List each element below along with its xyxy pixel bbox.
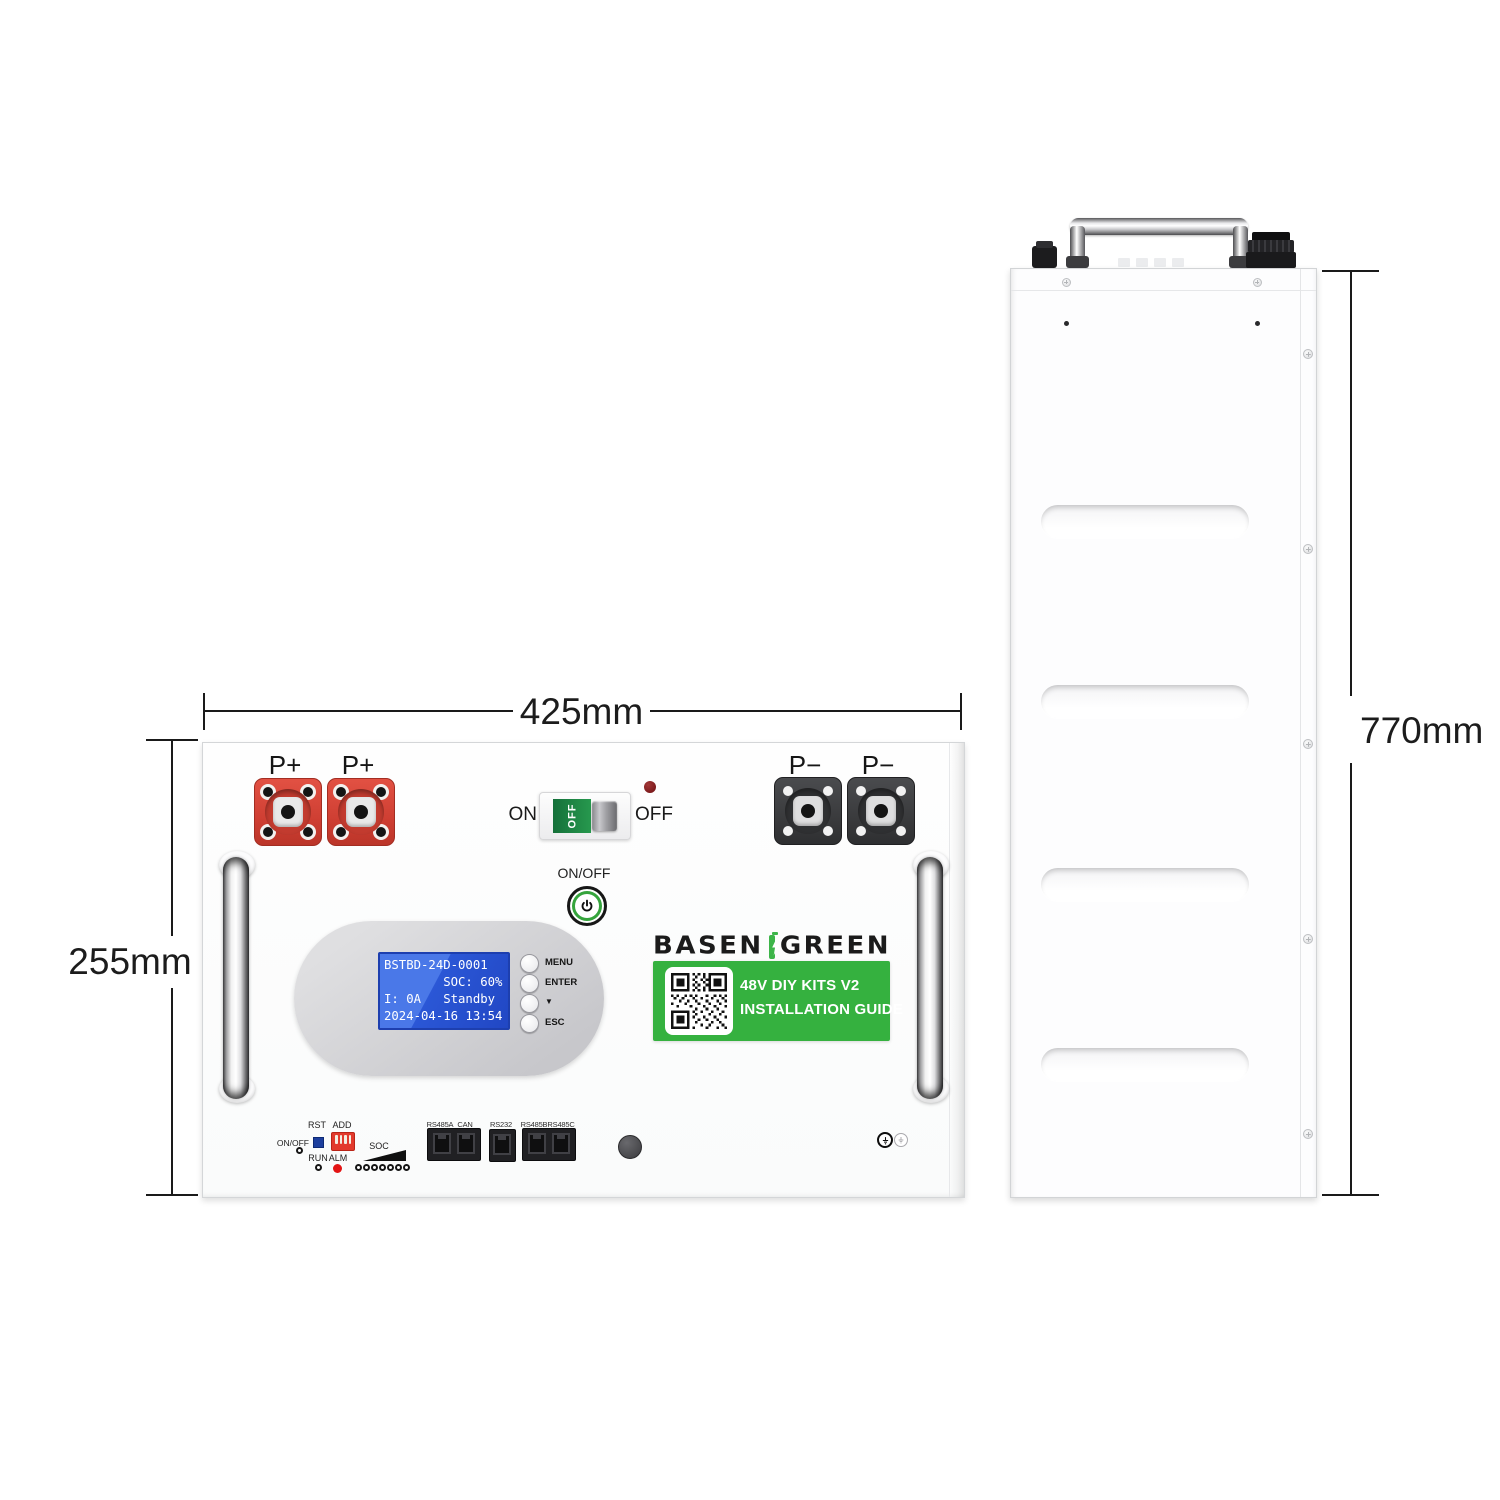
pin-hole xyxy=(1064,321,1069,326)
rj45-port xyxy=(433,1133,451,1154)
lcd-display: BSTBD-24D-0001 SOC: 60% I: 0A Standby 20… xyxy=(378,952,510,1030)
run-led xyxy=(315,1164,322,1171)
brand-word-left: BASEN xyxy=(653,932,764,960)
dimension-tick xyxy=(146,739,198,741)
soc-led xyxy=(355,1164,362,1171)
recessed-slot xyxy=(1041,685,1249,718)
positive-terminal xyxy=(327,778,395,846)
dimension-tick xyxy=(960,693,962,730)
rj45-port xyxy=(552,1133,570,1154)
positive-terminal-label: P+ xyxy=(255,750,315,781)
dimension-tick xyxy=(203,693,205,730)
rj45-port xyxy=(528,1133,546,1154)
soc-led xyxy=(395,1164,402,1171)
brand-word-right: GREEN xyxy=(780,932,891,960)
recessed-slot xyxy=(1041,868,1249,901)
lcd-line: I: 0A Standby xyxy=(384,991,504,1008)
recessed-slot xyxy=(1041,1048,1249,1081)
qr-code xyxy=(665,967,733,1035)
soc-wedge-icon xyxy=(363,1150,406,1161)
rs485b-rs485c-ports xyxy=(522,1128,576,1161)
lcd-line: 2024-04-16 13:54 xyxy=(384,1008,504,1025)
power-icon xyxy=(580,899,594,913)
breaker-off-label: OFF xyxy=(635,804,673,826)
power-button-label: ON/OFF xyxy=(549,865,619,881)
vent-slot xyxy=(1136,258,1148,267)
terminal-screw-hole xyxy=(303,827,313,837)
onoff-hole xyxy=(296,1147,303,1154)
rs232-port xyxy=(489,1129,516,1162)
positive-terminal-label: P+ xyxy=(328,750,388,781)
connector-base xyxy=(1246,252,1296,268)
dimension-line xyxy=(171,988,173,1196)
installation-guide-label: 48V DIY KITS V2 INSTALLATION GUIDE xyxy=(653,961,890,1041)
screw xyxy=(1253,278,1262,287)
esc-button xyxy=(520,1014,539,1033)
screw xyxy=(1062,278,1071,287)
guide-subtitle: INSTALLATION GUIDE xyxy=(740,1001,903,1018)
terminal-screw-hole xyxy=(896,826,906,836)
soc-led xyxy=(363,1164,370,1171)
terminal-pin xyxy=(354,805,368,819)
dimension-line xyxy=(1350,763,1352,1196)
status-led xyxy=(644,781,656,793)
breaker-window: OFF xyxy=(553,799,591,833)
rj11-port xyxy=(493,1134,511,1155)
negative-terminal xyxy=(774,777,842,845)
menu-button-label: MENU xyxy=(545,957,573,968)
soc-led xyxy=(403,1164,410,1171)
dimension-tick xyxy=(1322,1194,1379,1196)
battery-icon xyxy=(769,935,775,959)
height-dimension-label: 255mm xyxy=(66,941,194,983)
alarm-led xyxy=(333,1164,342,1173)
down-button xyxy=(520,994,539,1013)
reset-button xyxy=(313,1137,324,1148)
front-handle-right xyxy=(917,857,943,1099)
battery-dimension-diagram: 425mm 255mm 770mm P+ P+ P− P− xyxy=(0,0,1500,1500)
carry-handle xyxy=(1070,218,1248,235)
down-button-label: ▼ xyxy=(545,997,553,1006)
ground-screw-icon xyxy=(877,1132,893,1148)
vent-slot xyxy=(1118,258,1130,267)
rj45-port xyxy=(457,1133,475,1154)
breaker-on-label: ON xyxy=(503,804,537,826)
onoff-label: ON/OFF xyxy=(259,1138,309,1148)
breaker-switch: OFF xyxy=(539,792,631,840)
terminal-pin xyxy=(874,804,888,818)
vent-slot xyxy=(1154,258,1166,267)
battery-front-view: P+ P+ P− P− xyxy=(202,742,965,1198)
terminal-screw-hole xyxy=(376,827,386,837)
terminal-screw-hole xyxy=(823,826,833,836)
handle-post-base xyxy=(1066,256,1089,268)
panel-seam xyxy=(1011,290,1316,291)
soc-led xyxy=(387,1164,394,1171)
battery-side-view xyxy=(1010,268,1317,1198)
guide-title: 48V DIY KITS V2 xyxy=(740,977,859,994)
dimension-line xyxy=(203,710,513,712)
brand-logo: BASEN GREEN xyxy=(653,931,891,961)
terminal-pin xyxy=(281,805,295,819)
top-connector-large xyxy=(1246,232,1296,268)
enter-button xyxy=(520,974,539,993)
power-button xyxy=(567,886,607,926)
soc-led xyxy=(371,1164,378,1171)
pin-hole xyxy=(1255,321,1260,326)
lcd-line: BSTBD-24D-0001 xyxy=(384,957,504,974)
screw xyxy=(1303,934,1313,944)
side-height-dimension-label: 770mm xyxy=(1360,710,1500,752)
panel-right-edge xyxy=(949,743,964,1197)
top-connector-small xyxy=(1032,246,1057,268)
esc-button-label: ESC xyxy=(545,1017,565,1028)
recessed-slot xyxy=(1041,505,1249,538)
panel-fold xyxy=(1300,269,1301,1197)
vent-slot xyxy=(1172,258,1184,267)
menu-button xyxy=(520,954,539,973)
width-dimension-label: 425mm xyxy=(513,691,650,733)
enter-button-label: ENTER xyxy=(545,977,577,988)
soc-label: SOC xyxy=(364,1141,394,1151)
dimension-line xyxy=(171,740,173,936)
round-button xyxy=(618,1135,642,1159)
dimension-line xyxy=(1350,271,1352,696)
dimension-line xyxy=(650,710,962,712)
negative-terminal xyxy=(847,777,915,845)
dimension-tick xyxy=(146,1194,198,1196)
breaker-state-text: OFF xyxy=(566,804,578,829)
soc-led xyxy=(379,1164,386,1171)
breaker-knob xyxy=(592,801,617,831)
screw xyxy=(1303,1129,1313,1139)
rs485a-can-ports xyxy=(427,1128,481,1161)
lcd-line: SOC: 60% xyxy=(384,974,504,991)
terminal-pin xyxy=(801,804,815,818)
positive-terminal xyxy=(254,778,322,846)
alarm-label: ALM xyxy=(323,1153,353,1163)
address-dip-switch xyxy=(331,1132,355,1151)
dimension-tick xyxy=(1322,270,1379,272)
address-label: ADD xyxy=(327,1120,357,1130)
front-handle-left xyxy=(223,857,249,1099)
screw xyxy=(1303,349,1313,359)
qr-pattern xyxy=(671,973,727,1029)
screw xyxy=(1303,739,1313,749)
ground-symbol-icon xyxy=(894,1133,908,1147)
screw xyxy=(1303,544,1313,554)
